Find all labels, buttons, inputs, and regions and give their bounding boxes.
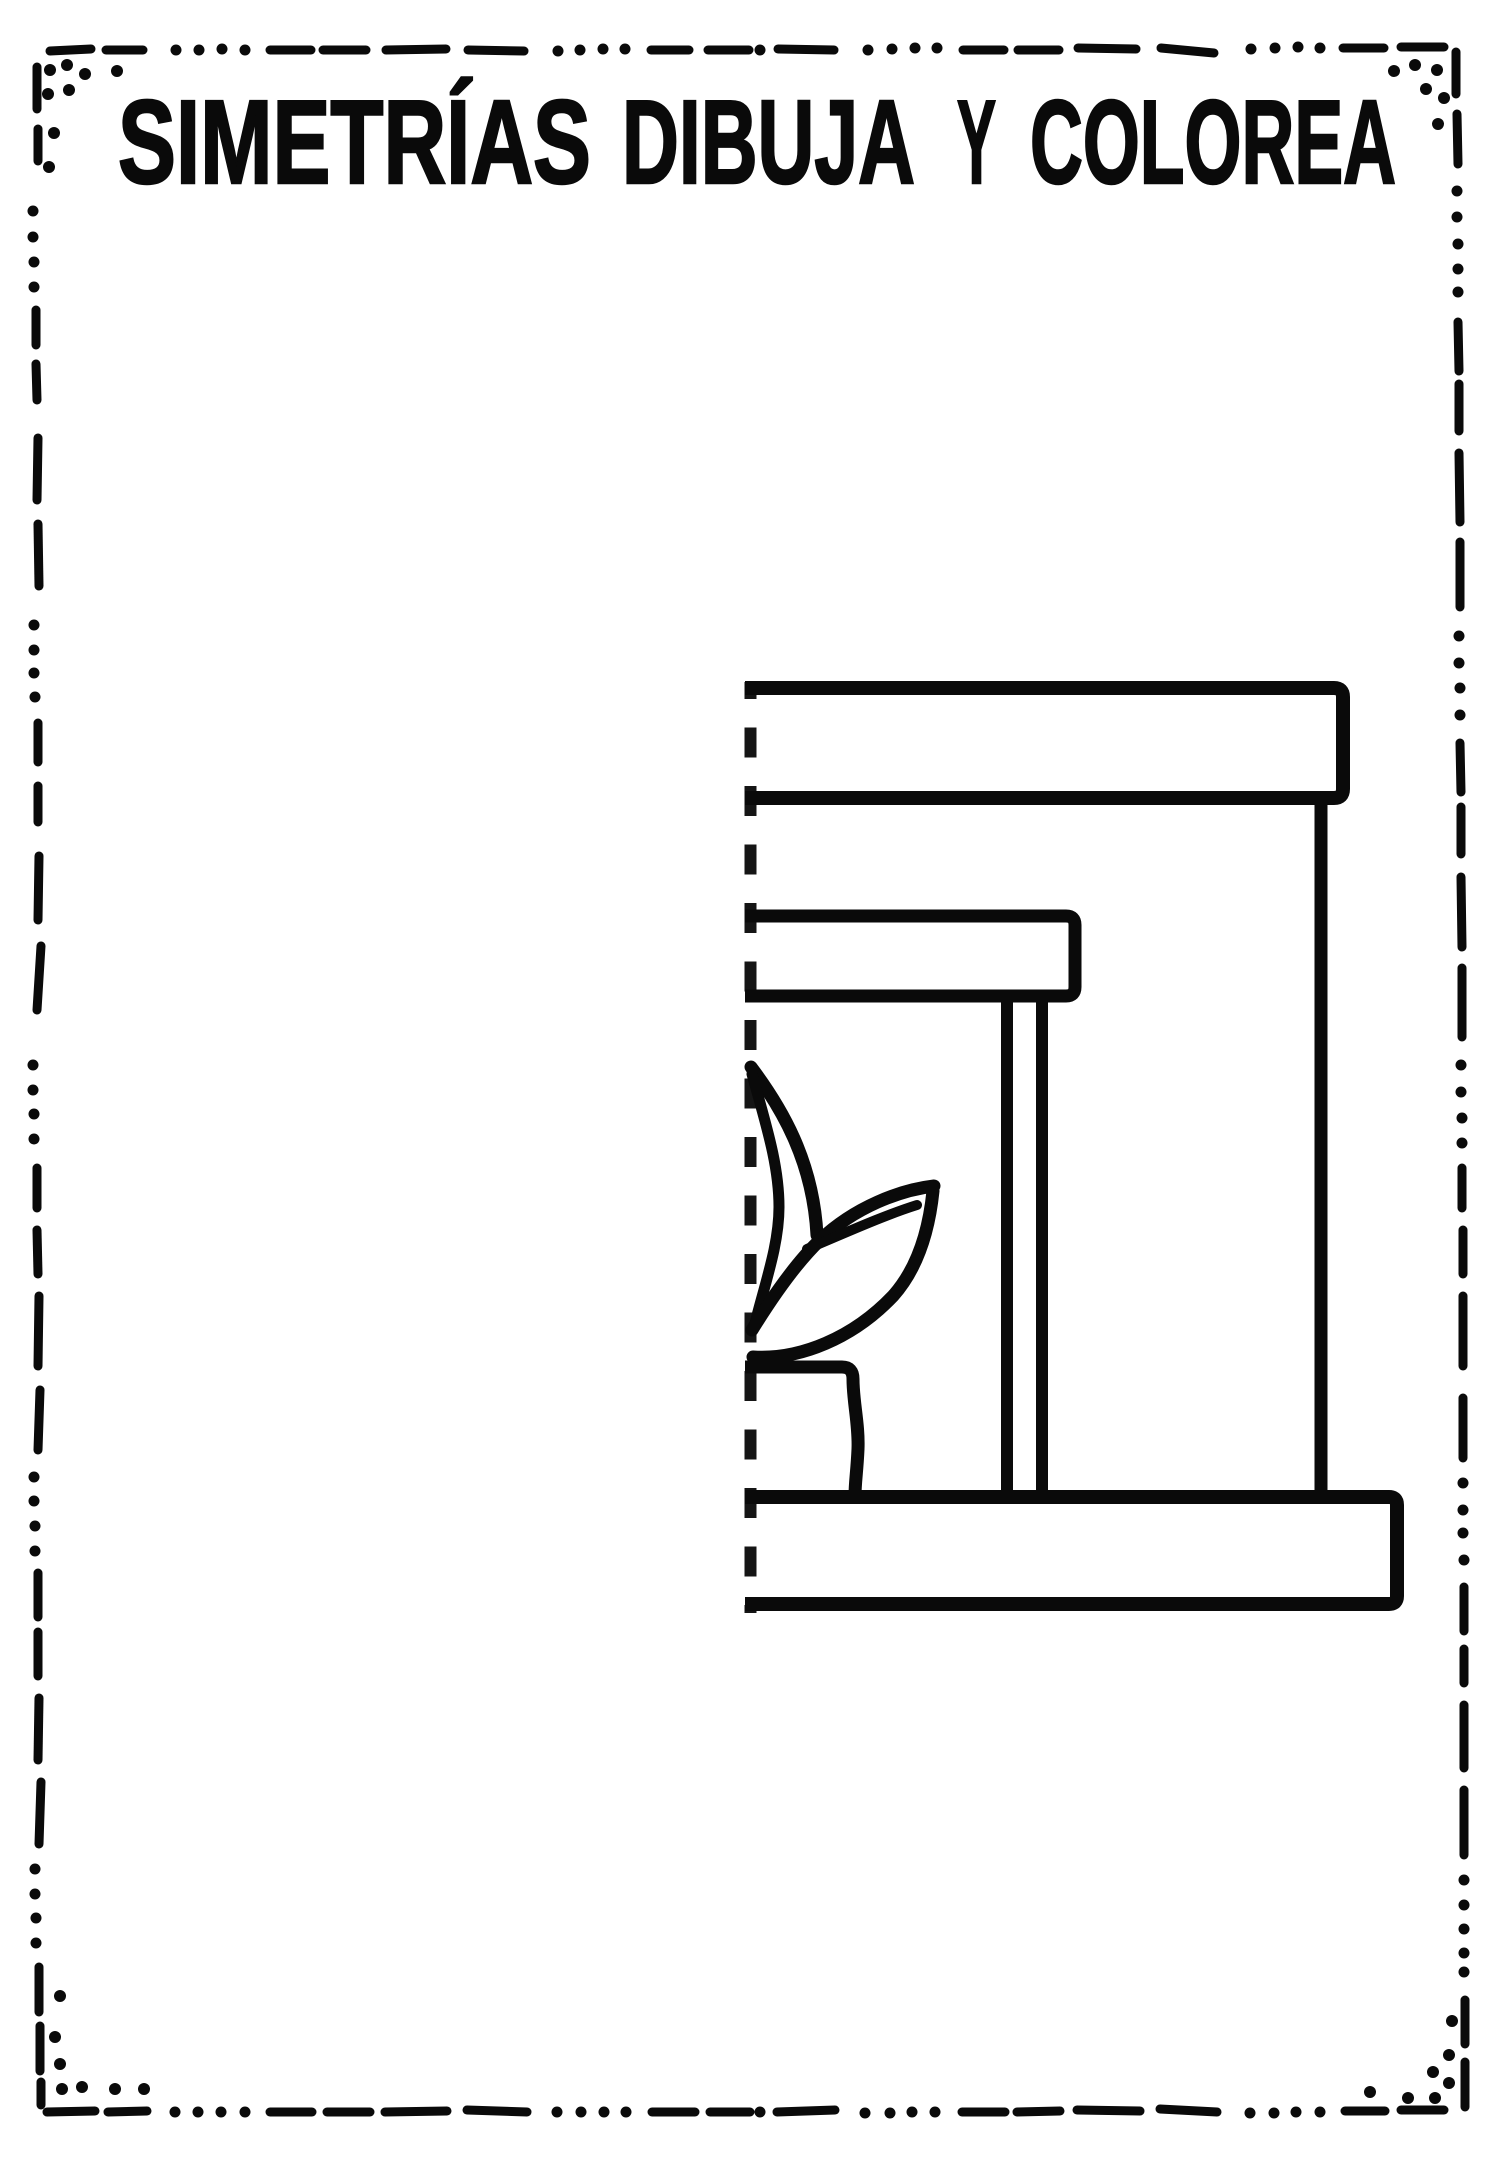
- svg-text:COLOREA: COLOREA: [1030, 76, 1396, 209]
- svg-text:Y: Y: [957, 76, 996, 209]
- svg-text:SIMETRÍAS: SIMETRÍAS: [118, 76, 591, 209]
- svg-text:DIBUJA: DIBUJA: [622, 76, 915, 209]
